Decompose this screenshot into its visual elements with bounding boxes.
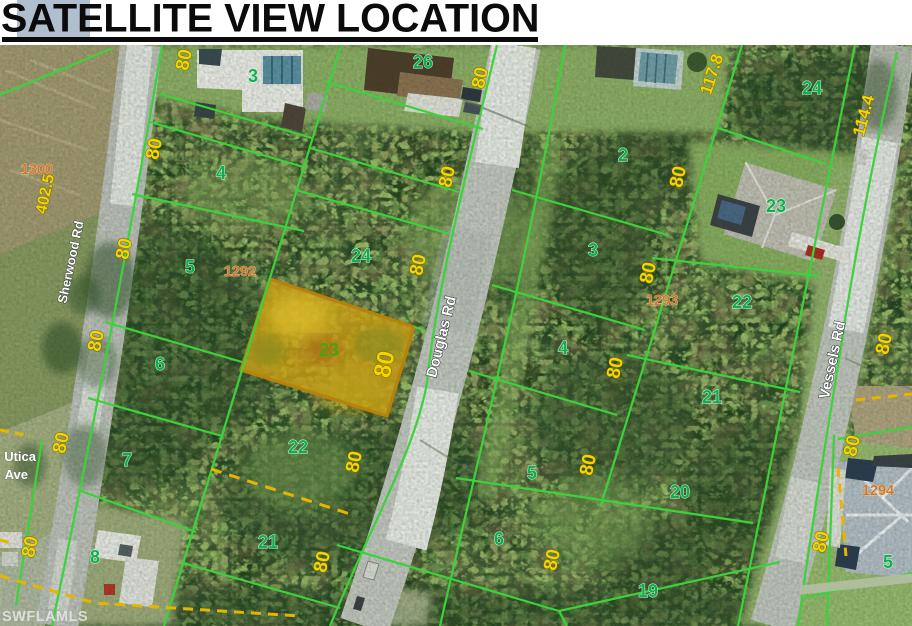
svg-text:1293: 1293 <box>646 293 678 309</box>
svg-text:7: 7 <box>122 450 132 470</box>
svg-text:1300: 1300 <box>21 162 53 178</box>
svg-text:80: 80 <box>142 136 167 161</box>
svg-text:23: 23 <box>766 196 786 216</box>
svg-text:Utica: Utica <box>4 449 37 464</box>
svg-text:80: 80 <box>840 433 865 458</box>
svg-text:20: 20 <box>670 482 690 502</box>
svg-text:80: 80 <box>112 236 137 261</box>
svg-text:22: 22 <box>732 292 752 312</box>
svg-text:80: 80 <box>636 260 661 285</box>
svg-text:21: 21 <box>702 387 722 407</box>
svg-text:24: 24 <box>351 246 371 266</box>
svg-text:3: 3 <box>248 66 258 86</box>
svg-text:SWFLAMLS: SWFLAMLS <box>2 609 88 625</box>
svg-text:5: 5 <box>185 257 195 277</box>
svg-text:19: 19 <box>638 581 658 601</box>
svg-text:26: 26 <box>413 52 433 72</box>
svg-text:80: 80 <box>342 449 367 474</box>
svg-text:5: 5 <box>527 463 537 483</box>
svg-text:80: 80 <box>603 355 628 380</box>
svg-text:1294: 1294 <box>862 483 894 499</box>
svg-text:80: 80 <box>809 529 834 554</box>
svg-text:1292: 1292 <box>224 264 256 280</box>
svg-text:4: 4 <box>216 163 226 183</box>
svg-text:80: 80 <box>49 430 74 455</box>
svg-text:80: 80 <box>172 47 197 72</box>
svg-text:4: 4 <box>558 338 568 358</box>
svg-text:21: 21 <box>258 532 278 552</box>
svg-text:80: 80 <box>468 65 493 90</box>
svg-text:Ave: Ave <box>5 467 28 482</box>
svg-text:8: 8 <box>90 547 100 567</box>
svg-text:3: 3 <box>588 240 598 260</box>
svg-text:6: 6 <box>155 354 165 374</box>
svg-text:6: 6 <box>494 529 504 549</box>
svg-text:SATELLITE VIEW LOCATION: SATELLITE VIEW LOCATION <box>1 0 539 41</box>
svg-text:2: 2 <box>618 145 628 165</box>
svg-text:80: 80 <box>576 452 601 477</box>
svg-text:80: 80 <box>540 547 565 572</box>
svg-text:22: 22 <box>288 437 308 457</box>
svg-text:5: 5 <box>883 552 893 572</box>
svg-text:80: 80 <box>435 164 460 189</box>
svg-text:80: 80 <box>369 349 401 381</box>
svg-text:80: 80 <box>18 534 43 559</box>
svg-text:80: 80 <box>406 252 431 277</box>
svg-text:23: 23 <box>319 340 339 360</box>
svg-text:80: 80 <box>310 549 335 574</box>
svg-text:24: 24 <box>802 78 822 98</box>
svg-text:80: 80 <box>666 164 691 189</box>
svg-text:80: 80 <box>84 328 109 353</box>
svg-text:80: 80 <box>872 331 897 356</box>
